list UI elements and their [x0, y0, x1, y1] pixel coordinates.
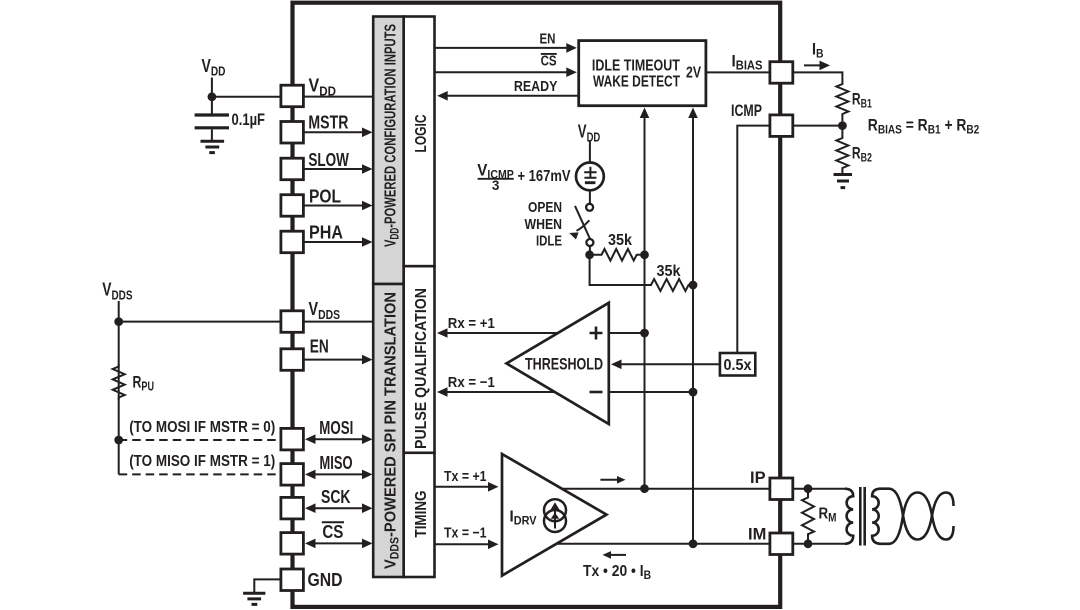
svg-text:35k: 35k — [657, 263, 681, 280]
svg-text:(TO MISO IF MSTR = 1): (TO MISO IF MSTR = 1) — [129, 453, 275, 470]
svg-text:SCK: SCK — [321, 487, 351, 507]
svg-text:+ 167mV: + 167mV — [518, 168, 572, 185]
svg-text:0.1µF: 0.1µF — [232, 111, 266, 129]
svg-text:ICMP: ICMP — [731, 102, 762, 120]
svg-text:Rx = +1: Rx = +1 — [448, 315, 495, 332]
svg-text:VDDS-POWERED SPI PIN TRANSLATI: VDDS-POWERED SPI PIN TRANSLATION — [383, 292, 402, 569]
svg-text:35k: 35k — [608, 232, 632, 249]
svg-text:Rx = −1: Rx = −1 — [448, 374, 495, 391]
svg-text:IDLE: IDLE — [536, 233, 562, 250]
svg-text:CS: CS — [541, 54, 557, 70]
svg-text:IM: IM — [748, 526, 766, 544]
svg-text:2V: 2V — [686, 64, 702, 81]
svg-text:Tx = +1: Tx = +1 — [444, 468, 487, 485]
svg-text:CS: CS — [322, 522, 343, 542]
svg-text:POL: POL — [309, 187, 341, 207]
svg-text:LOGIC: LOGIC — [413, 114, 430, 152]
svg-text:IP: IP — [750, 469, 766, 487]
svg-text:WHEN: WHEN — [525, 216, 563, 233]
svg-text:READY: READY — [514, 79, 558, 95]
svg-text:(TO MOSI IF MSTR = 0): (TO MOSI IF MSTR = 0) — [129, 419, 275, 436]
svg-text:MSTR: MSTR — [308, 113, 348, 133]
svg-text:Tx = −1: Tx = −1 — [444, 525, 487, 542]
svg-text:VDD-POWERED CONFIGURATION INPU: VDD-POWERED CONFIGURATION INPUTS — [383, 24, 402, 247]
svg-text:Tx • 20 • IB: Tx • 20 • IB — [583, 563, 651, 582]
svg-text:3: 3 — [492, 178, 500, 193]
svg-text:MISO: MISO — [320, 453, 353, 473]
svg-text:EN: EN — [310, 337, 329, 357]
svg-text:PULSE QUALIFICATION: PULSE QUALIFICATION — [413, 288, 430, 449]
svg-text:WAKE DETECT: WAKE DETECT — [593, 74, 680, 91]
svg-text:EN: EN — [540, 32, 556, 48]
svg-text:TIMING: TIMING — [413, 491, 430, 538]
svg-text:IDLE TIMEOUT: IDLE TIMEOUT — [592, 58, 680, 75]
svg-text:PHA: PHA — [309, 223, 343, 243]
svg-text:0.5x: 0.5x — [724, 357, 752, 374]
svg-text:MOSI: MOSI — [319, 418, 353, 438]
svg-text:THRESHOLD: THRESHOLD — [525, 355, 603, 373]
svg-text:GND: GND — [308, 570, 343, 590]
svg-text:SLOW: SLOW — [308, 150, 349, 170]
svg-text:OPEN: OPEN — [528, 199, 562, 216]
